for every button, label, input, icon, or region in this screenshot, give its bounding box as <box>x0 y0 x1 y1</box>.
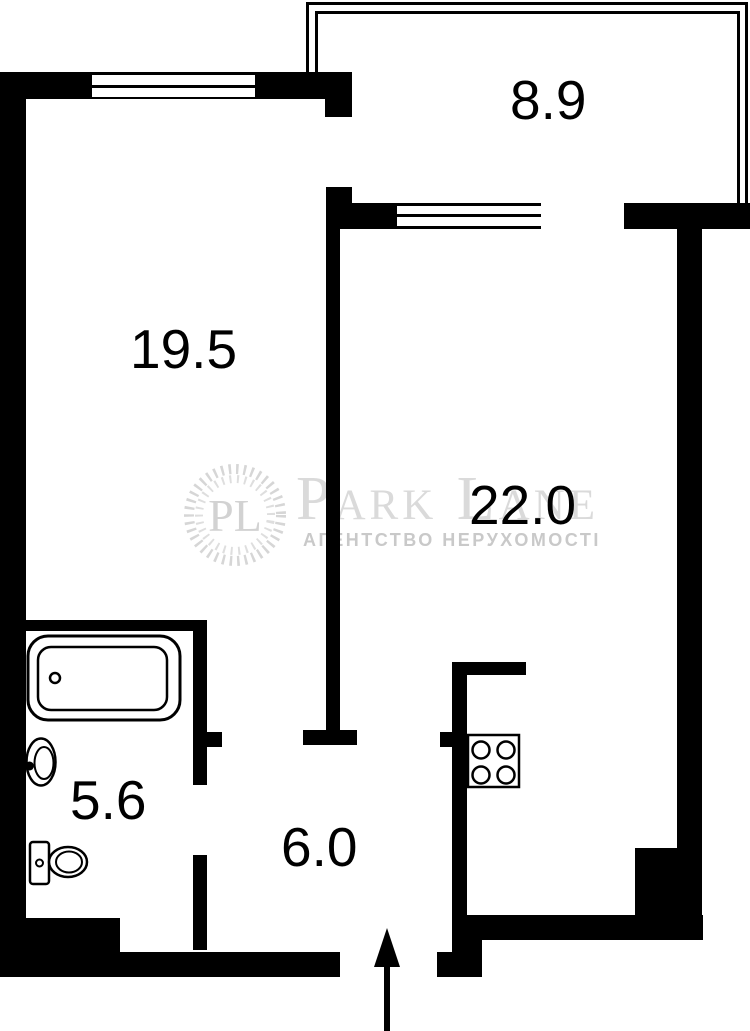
toilet-icon <box>30 842 87 884</box>
stove-icon <box>468 735 519 787</box>
room-label-bathroom: 5.6 <box>70 773 146 828</box>
floor-plan: PL Park Lane АГЕНТСТВО НЕРУХОМОСТІ <box>0 0 750 1031</box>
bathtub-icon <box>28 636 180 720</box>
room-label-living-room: 19.5 <box>130 322 237 377</box>
room-label-hallway: 6.0 <box>281 820 357 875</box>
room-label-main-room: 22.0 <box>469 478 576 533</box>
sink-icon <box>25 739 56 786</box>
fixtures-layer <box>0 0 750 1031</box>
entrance-arrow-icon <box>374 928 400 1031</box>
room-label-balcony: 8.9 <box>510 73 586 128</box>
